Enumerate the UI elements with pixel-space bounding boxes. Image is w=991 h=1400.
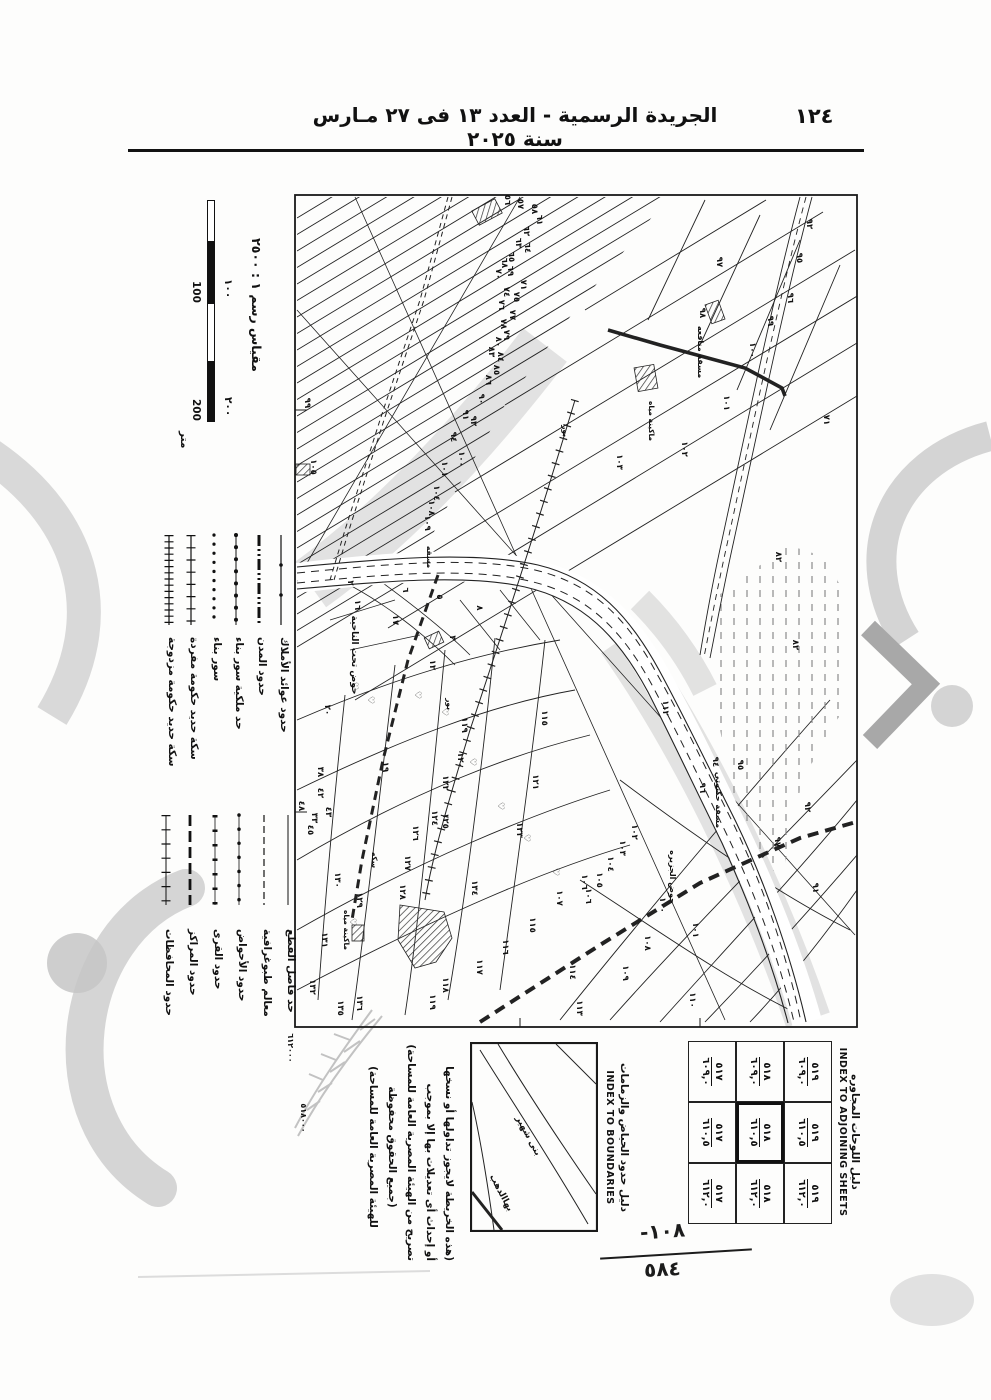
legend-symbol-tri — [209, 813, 223, 907]
parcel-number: ١٢٢ — [440, 775, 450, 791]
parcel-number: ١٣٥ — [335, 1000, 345, 1016]
map-feature-label: بور — [561, 424, 570, 437]
watermark-blob-bottom — [890, 1274, 974, 1326]
parcel-number: ١٠١ — [439, 461, 449, 477]
boundaries-inset-map: بنى شهيربهاالدهب — [466, 1042, 598, 1232]
parcel-number: ٩٥ — [735, 760, 745, 770]
sheet-number: ٥١٧ — [712, 1057, 725, 1085]
watermark-dot-right — [931, 685, 973, 727]
parcel-number: ١٢١ — [530, 774, 540, 790]
parcel-number: ٩٤ — [710, 757, 720, 767]
parcel-number: ٣٣ — [309, 813, 319, 824]
parcel-number: ٨٥ — [491, 365, 501, 375]
scale-mark-lower-200: 200 — [190, 399, 202, 421]
map-feature-label: مسقة منافعه — [696, 326, 705, 378]
parcel-number: ١٣٢ — [307, 979, 317, 995]
watermark-chevron — [868, 628, 926, 742]
parcel-number: ٢٠ — [322, 705, 332, 715]
parcel-number: ١١٨ — [440, 977, 450, 993]
parcel-number: ١٠٤ — [605, 856, 615, 872]
parcel-number: ١٣٤ — [469, 880, 479, 896]
tree-symbol: ♡ — [521, 834, 531, 842]
parcel-number: ١٢٧ — [402, 855, 412, 871]
gazette-header-title: الجريدة الرسمية - العدد ١٣ فى ٢٧ مـارس س… — [300, 103, 730, 151]
scale-mark-upper-100: ١٠٠ — [222, 279, 234, 298]
scale-segment — [207, 242, 215, 303]
parcel-number: ١٠٠ — [456, 451, 466, 467]
inset-labels: بنى شهيربهاالدهب — [487, 1114, 542, 1213]
sheet-coordinate: ٦١٠,٥ — [748, 1118, 760, 1146]
parcel-number: ١٠١ — [721, 395, 731, 411]
sheet-coordinate: ٦٠٩,٠ — [700, 1057, 712, 1085]
adjoining-cell: ٥١٩٦١٠,٥ — [784, 1102, 832, 1163]
parcel-number: ٣ — [447, 635, 457, 641]
parcel-number: ١١٧ — [474, 959, 484, 975]
sheet-number: ٥١٩ — [808, 1057, 821, 1085]
parcel-number: ٩٦ — [697, 783, 707, 793]
parcel-number: ٤٢ — [315, 788, 325, 799]
sheet-coordinate: ٦١٢,٠ — [700, 1179, 712, 1207]
parcel-number: ١٢٦ — [410, 825, 420, 841]
parcel-number: ٧٥ — [511, 292, 521, 302]
parcel-number: ٨٠ — [493, 337, 503, 347]
parcel-number: ٤٣ — [323, 807, 333, 818]
tree-symbol: ♡ — [349, 682, 359, 690]
legend-symbol-cross — [160, 813, 174, 907]
parcel-number: ١٦ — [352, 600, 362, 610]
parcel-number: ٩٧ — [772, 837, 782, 848]
map-feature-label: ٩٩ — [302, 398, 312, 409]
parcel-number: ١٠٢ — [679, 441, 689, 457]
parcel-number: ١٠٠ — [747, 342, 757, 358]
sheet-coordinate: ٦١٠,٥ — [796, 1118, 808, 1146]
sheet-number: ٥١٨ — [760, 1179, 773, 1207]
parcel-number: ١٠٥ — [308, 459, 318, 475]
parcel-number: ٩٢ — [468, 416, 478, 427]
scale-unit: متر — [178, 431, 190, 448]
scale-mark-lower-100: 100 — [190, 281, 202, 303]
sheet-number: ٥١٨ — [760, 1118, 773, 1146]
adjoining-cell: ٥١٧٦٠٩,٠ — [688, 1041, 736, 1102]
parcel-number: ٩٠ — [476, 394, 486, 404]
parcel-number: ١٠٣ — [614, 454, 624, 470]
adjoining-cell-current: ٥١٨٦١٠,٥ — [736, 1102, 784, 1163]
adjoining-cell: ٥١٩٦٠٩,٠ — [784, 1041, 832, 1102]
parcel-number: ٧١ — [518, 280, 528, 290]
legend-label: حدود المراكز — [187, 929, 199, 996]
parcel-number: ٧٤ — [501, 287, 511, 297]
parcel-number: ١١٠ — [687, 992, 697, 1008]
parcel-number: ١٢٠ — [455, 752, 465, 768]
adjoining-index-title-ar: دليل اللوحات المجاوره — [849, 1037, 861, 1227]
parcel-number: ٤٥ — [305, 825, 315, 835]
parcel-number: ٦٤ — [522, 243, 532, 253]
parcel-number: ١٠٦ — [583, 888, 593, 904]
parcel-number: ٧١ — [821, 415, 831, 425]
note-line: (هذه الخريطة لايجوز تداولها أو نسخها — [439, 1033, 458, 1261]
parcel-number: ١٠٢ — [629, 824, 639, 840]
watermark-swoosh-left — [0, 455, 84, 716]
parcel-number: ١١٢ — [660, 700, 670, 716]
scale-bar — [207, 200, 215, 422]
parcel-number: ١٠١ — [690, 922, 700, 938]
parcel-number: ١١٦ — [500, 939, 510, 955]
parcel-number: ١١٤ — [567, 964, 577, 980]
parcel-number: ٩١ — [810, 883, 820, 893]
parcel-number: ١١٥ — [539, 710, 549, 726]
legend-label: حد ملكية سور بناء — [233, 637, 245, 730]
parcel-number: ٣٨ — [315, 767, 325, 778]
sheet-number: ٥١٩ — [808, 1118, 821, 1146]
parcel-number: ١٠٠ — [657, 897, 667, 913]
parcel-number: ١٢٩ — [354, 892, 364, 908]
tree-symbol: ♡ — [467, 758, 477, 766]
parcel-number: ١١٩ — [427, 994, 437, 1010]
note-line: (جميع الحقوق محفوظة — [382, 1033, 401, 1261]
parcel-number: ١٠٥ — [594, 872, 604, 888]
legend-label: حدود المدن — [256, 637, 268, 696]
parcel-number: ١٢ — [427, 660, 437, 671]
legend-symbol-beads — [230, 533, 244, 627]
map-feature-label: حوض الجزيره — [667, 850, 677, 904]
legend-label: سكة حديد حكومة مفردة — [188, 637, 200, 760]
map-feature-label: ماكينة مياه — [647, 401, 656, 441]
survey-map-sheet: ٥٦٥٧٥٨٦١٦٢٦٣٦٤٦٥٦٨٦٩٧٠٧١٧٤٧٥٧٦٧٧٧٨٧٩٨٠٨٣… — [140, 185, 860, 1295]
legend-symbol-city — [253, 533, 267, 627]
adjoining-sheets-grid: ٥١٩٦٠٩,٠٥١٩٦١٠,٥٥١٩٦١٢,٠٥١٨٦٠٩,٠٥١٨٦١٠,٥… — [687, 1041, 832, 1225]
parcel-number: ٩٧ — [714, 257, 724, 268]
note-line: أو إحداث أى تعديلات بها إلا بموجب — [420, 1033, 439, 1261]
parcel-number: ٢ — [345, 580, 355, 586]
legend-label: معالم طبوغرافية — [261, 929, 273, 1017]
parcel-number: ٩٨ — [697, 308, 707, 319]
copyright-notes: (هذه الخريطة لايجوز تداولها أو نسخهاأو إ… — [364, 1033, 458, 1261]
adjoining-cell: ٥١٩٦١٢,٠ — [784, 1163, 832, 1224]
parcel-number: ١٢٤ — [429, 810, 439, 826]
map-feature-label: ٥١٨٠٠٠ — [299, 1103, 308, 1132]
adjoining-cell: ٥١٧٦١٠,٥ — [688, 1102, 736, 1163]
legend-symbol-rail1 — [185, 533, 199, 627]
track-line — [352, 575, 438, 920]
parcel-number: ٥٨ — [529, 204, 539, 215]
map-feature-label: مسقه — [425, 546, 434, 569]
legend-label: حدود المحافظات — [163, 929, 175, 1016]
page-number: ١٢٤ — [795, 104, 833, 128]
header-rule — [128, 149, 864, 152]
parcel-number: ١٣١ — [319, 932, 329, 948]
map-feature-label: مسقة حكنوتي — [714, 772, 723, 828]
legend-symbol-dotline — [275, 533, 289, 627]
parcel-number: ٦ — [400, 587, 410, 592]
parcel-number: ٩٤ — [448, 432, 458, 442]
sheet-coordinate: ٦١٢,٠ — [796, 1179, 808, 1207]
tree-symbol: ♡ — [550, 868, 560, 876]
parcel-number: ١٢٨ — [397, 884, 407, 900]
scale-title: مقياس رسم ١ : ٢٥٠٠ — [249, 207, 264, 403]
parcel-number: ٦١ — [534, 215, 544, 225]
map-feature-label: ٦١٢٠٠٠ — [286, 1033, 295, 1062]
tree-symbol: ♡ — [347, 918, 357, 926]
parcel-number: ٥٦ — [502, 195, 512, 205]
adjoining-cell: ٥١٨٦٠٩,٠ — [736, 1041, 784, 1102]
parcel-number: ١٠٩ — [620, 965, 630, 981]
parcel-number: ١٠٣ — [617, 840, 627, 856]
legend-symbol-beads2 — [233, 813, 247, 907]
parcel-number: ١١٥ — [527, 917, 537, 933]
scale-segment — [207, 303, 215, 362]
parcel-number: ٩٦ — [785, 293, 795, 303]
parcel-number: ١٠٤ — [431, 485, 441, 501]
hand-annotation-bottom: ٥٨٤ — [643, 1256, 681, 1282]
legend-symbol-rail2 — [163, 533, 177, 627]
parcel-number: ٩٩ — [765, 316, 775, 327]
scale-segment — [207, 362, 215, 422]
parcel-number: ٩٢ — [802, 802, 812, 813]
map-content: ٥٦٥٧٥٨٦١٦٢٦٣٦٤٦٥٦٨٦٩٧٠٧١٧٤٧٥٧٦٧٧٧٨٧٩٨٠٨٣… — [286, 185, 859, 1133]
parcel-number: ٧٨ — [498, 319, 508, 330]
hand-annotation: -١٠٨ ٥٨٤ — [600, 1205, 770, 1300]
parcel-number: ٧٠ — [493, 269, 503, 279]
watermark-swoosh-right — [881, 436, 990, 640]
parcel-number: ٨٣ — [486, 347, 496, 358]
parcel-number: ١٠٩ — [422, 515, 432, 531]
tree-symbol: ♡ — [412, 691, 422, 699]
legend-label: سكة حديد حكومة مزدوجة — [166, 637, 178, 766]
map-feature-label: ماكينة مياه — [342, 910, 351, 950]
parcel-number: ٨٢ — [773, 552, 783, 563]
sheet-number: ٥١٩ — [808, 1179, 821, 1207]
legend-symbol-dots — [208, 533, 222, 627]
parcel-number: ١٧ — [390, 615, 400, 626]
legend-label: حد فاصل القطع — [285, 929, 297, 1013]
note-line: تصريح من الهيئة المصرية العامة للمساحة) — [401, 1033, 420, 1261]
parcel-number: ١٢٥ — [440, 813, 450, 829]
parcel-number: ٥٧ — [515, 199, 525, 210]
sheet-number: ٥١٧ — [712, 1179, 725, 1207]
adjoining-index-title-en: INDEX TO ADJOINING SHEETS — [837, 1033, 848, 1231]
legend-label: سور بناء — [211, 637, 223, 681]
tree-symbol: ♡ — [495, 802, 505, 810]
legend-label: حدود الأحواض — [236, 929, 248, 1002]
parcel-number: ١١٩ — [459, 717, 469, 733]
parcel-number: ٥ — [434, 594, 444, 599]
parcel-number: ٨ — [474, 605, 484, 611]
note-line: للهيئة المصرية العامة للمساحة) — [364, 1033, 383, 1261]
parcel-number: ١١٣ — [574, 1000, 584, 1016]
inset-place-label: بنى شهير — [513, 1114, 543, 1158]
sheet-coordinate: ٦٠٩,٠ — [748, 1057, 760, 1085]
map-feature-label: سكه — [370, 852, 379, 868]
parcel-number: ١٣٦ — [354, 995, 364, 1011]
parcel-number: ٨٤ — [495, 352, 505, 362]
parcel-number: ٦٢ — [521, 226, 531, 237]
parcel-number: ٩٥ — [794, 253, 804, 263]
parcel-number: ١٩ — [380, 762, 390, 773]
legend-symbol-dash — [258, 813, 272, 907]
parcel-number: ١٣٠ — [332, 872, 342, 888]
parcel-number: ٧٦ — [496, 300, 506, 310]
tree-symbol: ♡ — [439, 708, 449, 716]
scale-mark-upper-200: ٢٠٠ — [222, 397, 234, 416]
sheet-coordinate: ٦١٠,٥ — [700, 1118, 712, 1146]
watermark-blob — [47, 933, 107, 993]
legend-symbol-heavy — [184, 813, 198, 907]
legend-symbol-thin — [282, 813, 296, 907]
map-feature-label: ٤٨ — [296, 801, 306, 812]
sheet-number: ٥١٨ — [760, 1057, 773, 1085]
parcel-number: ١٠٨ — [642, 935, 652, 951]
parcel-number: ٩٢ — [804, 219, 814, 230]
parcel-number: ١٠٨ — [426, 500, 436, 516]
legend-label: حدود القرى — [212, 929, 224, 989]
parcel-number: ٨٦ — [483, 375, 493, 385]
parcel-number: ٨٢ — [790, 640, 800, 651]
hand-annotation-top: -١٠٨ — [639, 1217, 686, 1244]
parcel-number: ٦٩ — [505, 266, 515, 277]
scale-segment — [207, 200, 215, 242]
tree-symbol: ♡ — [365, 696, 375, 704]
parcel-number: ١٠٧ — [554, 890, 564, 906]
sheet-coordinate: ٦٠٩,٠ — [796, 1057, 808, 1085]
sheet-number: ٥١٧ — [712, 1118, 725, 1146]
sheet-coordinate: ٦١٢,٠ — [748, 1179, 760, 1207]
legend-label: حدود عوائد الأملاك — [278, 637, 290, 733]
parcel-number: ٦٣ — [513, 238, 523, 249]
